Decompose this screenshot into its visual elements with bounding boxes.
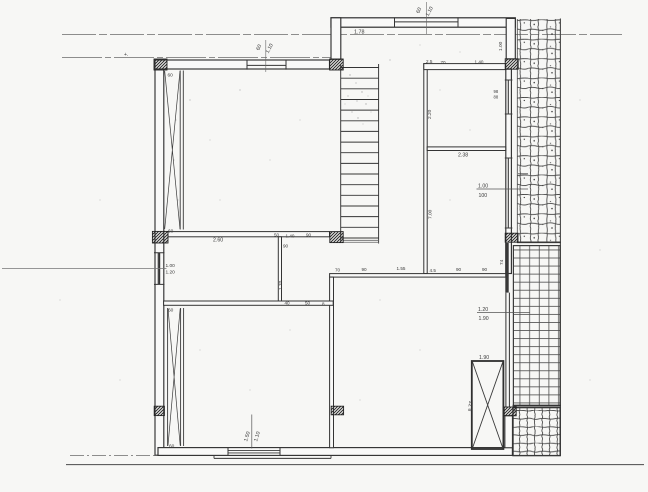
svg-text:60: 60: [168, 308, 174, 314]
svg-text:60: 60: [169, 444, 175, 450]
svg-text:1.40: 1.40: [475, 60, 484, 65]
svg-text:1.00: 1.00: [166, 263, 176, 269]
svg-text:1.90: 1.90: [479, 316, 489, 322]
svg-text:1.78: 1.78: [354, 30, 365, 36]
svg-text:60: 60: [168, 229, 174, 235]
svg-text:70: 70: [441, 60, 447, 65]
svg-text:90: 90: [482, 267, 488, 272]
svg-text:1.55: 1.55: [397, 266, 406, 271]
svg-text:74: 74: [499, 259, 505, 265]
svg-text:70: 70: [335, 268, 341, 273]
svg-text:8.77: 8.77: [468, 401, 475, 412]
svg-text:100: 100: [479, 193, 488, 199]
svg-text:8: 8: [322, 302, 325, 307]
svg-text:90: 90: [362, 267, 368, 272]
svg-text:60: 60: [168, 73, 174, 79]
svg-text:7.00: 7.00: [428, 209, 434, 219]
svg-text:1.40: 1.40: [286, 234, 295, 239]
svg-text:88: 88: [494, 95, 499, 100]
svg-text:50: 50: [274, 233, 280, 238]
svg-text:1.00: 1.00: [478, 184, 488, 190]
svg-text:90: 90: [306, 233, 312, 238]
svg-text:1.00: 1.00: [498, 41, 504, 51]
svg-text:2.38: 2.38: [458, 153, 468, 159]
svg-text:90: 90: [283, 244, 289, 249]
svg-text:98: 98: [494, 89, 499, 94]
svg-text:1.90: 1.90: [479, 355, 489, 361]
svg-text:4.5: 4.5: [430, 268, 437, 273]
svg-text:1.20: 1.20: [478, 307, 488, 313]
svg-text:2.20: 2.20: [427, 109, 433, 119]
svg-text:1.70: 1.70: [278, 280, 284, 290]
svg-text:1.20: 1.20: [166, 270, 176, 276]
svg-text:50: 50: [305, 301, 311, 306]
svg-text:40: 40: [285, 301, 291, 306]
svg-text:2.60: 2.60: [213, 238, 223, 244]
svg-text:+.: +.: [124, 52, 128, 58]
svg-text:90: 90: [456, 267, 462, 272]
svg-text:2.5: 2.5: [426, 59, 433, 64]
